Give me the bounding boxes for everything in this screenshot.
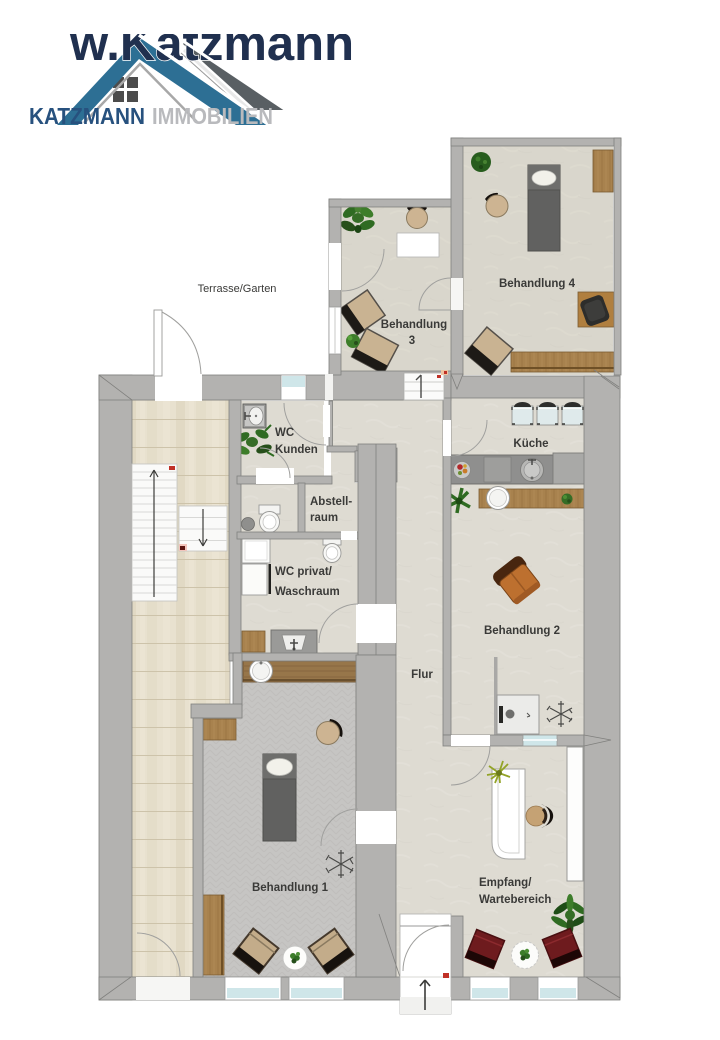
svg-text:Waschraum: Waschraum xyxy=(275,586,340,598)
svg-text:Abstell-: Abstell- xyxy=(310,496,352,508)
svg-text:KATZMANN: KATZMANN xyxy=(29,103,145,129)
svg-text:Kunden: Kunden xyxy=(275,444,318,456)
svg-text:raum: raum xyxy=(310,512,338,524)
svg-text:Behandlung: Behandlung xyxy=(381,319,447,331)
svg-text:Behandlung 4: Behandlung 4 xyxy=(499,278,576,290)
svg-text:Empfang/: Empfang/ xyxy=(479,877,532,889)
svg-text:WC: WC xyxy=(275,427,294,439)
svg-text:WC privat/: WC privat/ xyxy=(275,566,333,578)
svg-text:Wartebereich: Wartebereich xyxy=(479,894,551,906)
svg-text:IMMOBILIEN: IMMOBILIEN xyxy=(152,103,273,129)
svg-text:Flur: Flur xyxy=(411,669,433,681)
svg-text:Terrasse/Garten: Terrasse/Garten xyxy=(198,283,277,295)
svg-text:Behandlung 1: Behandlung 1 xyxy=(252,882,329,894)
svg-text:3: 3 xyxy=(409,335,415,347)
svg-text:Küche: Küche xyxy=(513,438,548,450)
svg-text:Behandlung 2: Behandlung 2 xyxy=(484,625,560,637)
